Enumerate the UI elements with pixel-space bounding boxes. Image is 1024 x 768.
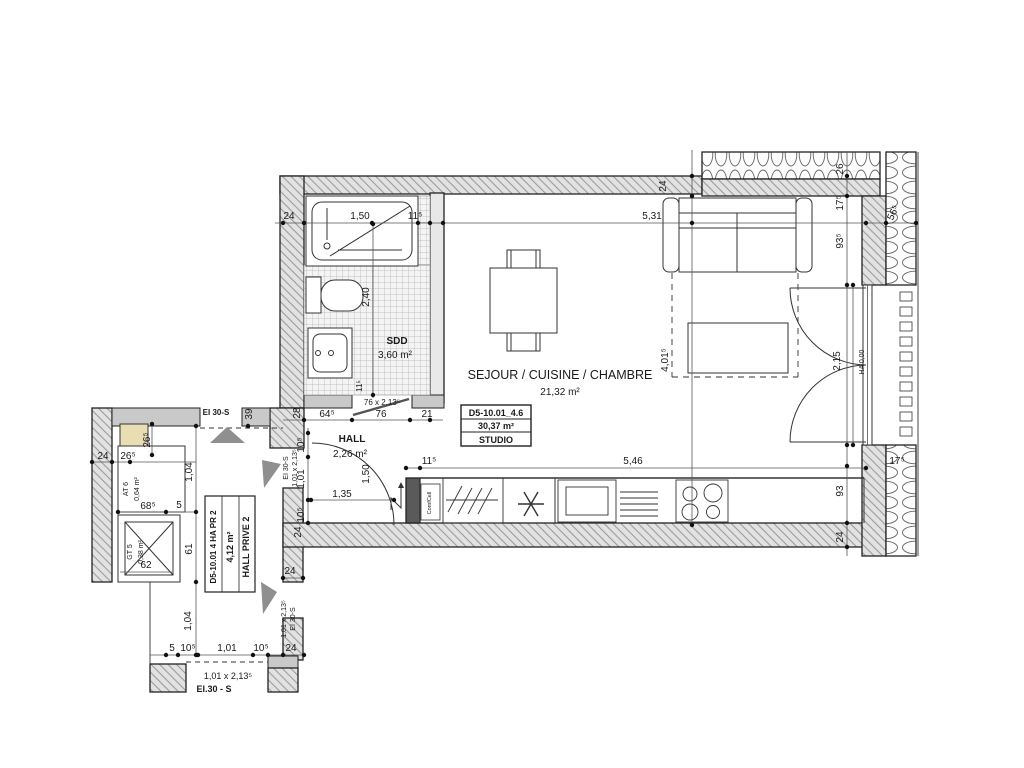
info-boxes <box>205 405 531 592</box>
dim: 11⁵ <box>408 211 423 222</box>
dim: 28 <box>292 407 303 419</box>
dim: 76 <box>375 409 387 420</box>
wall-top-right-insulation <box>702 152 880 179</box>
main-room-name: SEJOUR / CUISINE / CHAMBRE <box>468 368 653 382</box>
dim: 10⁵ <box>253 643 268 654</box>
lower-door-label: EI 30-S <box>290 607 297 631</box>
floor-plan-drawing: SEJOUR / CUISINE / CHAMBRE 21,32 m² SDD … <box>0 0 1024 768</box>
dim: 26 <box>835 163 846 175</box>
entry-door-label: EI 30-S <box>283 456 290 480</box>
dim: 24 <box>285 643 297 654</box>
hob <box>676 480 728 522</box>
door-triangle-corridor-top <box>210 427 245 443</box>
wall-top <box>280 176 702 194</box>
washbasin-drain <box>329 351 334 356</box>
wall-entry-right-gray <box>268 656 298 668</box>
lower-door-size: 1,01 x 2,13⁵ <box>281 600 288 638</box>
washbasin <box>308 328 352 378</box>
dim: 24 <box>97 451 109 462</box>
dim: 1,50 <box>361 464 372 484</box>
dim: 5 <box>176 500 182 511</box>
shaft-at6-area: 0,64 m² <box>134 476 141 500</box>
unit-area: 30,37 m² <box>478 421 514 431</box>
dim: 39 <box>244 408 255 420</box>
wall-kitchen-stub <box>406 478 420 523</box>
dim: 17⁵ <box>835 195 846 210</box>
dim: 24 <box>835 531 846 543</box>
chair-top <box>507 250 540 268</box>
bathtub-faucet <box>324 243 330 249</box>
corridor-code: D5-10.01 4 HA PR 2 <box>209 510 218 584</box>
sofa <box>663 198 812 272</box>
floor-plan-page: SEJOUR / CUISINE / CHAMBRE 21,32 m² SDD … <box>0 0 1024 768</box>
wall-left-exterior <box>92 408 112 582</box>
corridor-door-label: EI 30-S <box>203 408 230 417</box>
bottom-door-label: EI.30 - S <box>196 684 231 694</box>
dining-table <box>490 250 557 351</box>
dim: 5 <box>169 643 175 654</box>
dim: 10⁵ <box>296 437 307 452</box>
bath-door-size: 76 x 2,13⁵ <box>364 398 400 407</box>
dim: 1,04 <box>184 462 195 482</box>
chair-bottom <box>507 333 540 351</box>
wall-bath-south-right <box>412 395 444 408</box>
dim: 17⁵ <box>889 456 904 467</box>
dim: 61 <box>184 543 195 555</box>
vent-unit-label: ComfCell <box>427 492 433 515</box>
oven <box>558 480 616 522</box>
balcony-railing <box>900 292 912 436</box>
dim: 4,01⁵ <box>660 348 671 372</box>
kitchen-cabinet <box>443 478 503 523</box>
dim: 24 <box>658 180 669 192</box>
wall-entry-right <box>268 668 298 692</box>
shaft-at6-name: AT 6 <box>123 482 130 496</box>
main-room-area: 21,32 m² <box>540 387 580 398</box>
threshold-label: HA 0,00 <box>859 349 866 374</box>
french-door-arc-bottom <box>790 365 866 442</box>
door-triangle-lower <box>261 582 277 614</box>
wall-corridor-lintel <box>112 408 200 426</box>
hall-area: 2,26 m² <box>333 449 368 460</box>
door-triangle-entry <box>262 460 281 488</box>
wall-bottom <box>283 523 868 547</box>
wall-right-reveal-bottom <box>862 445 886 556</box>
kitchen <box>391 478 864 523</box>
hall-name: HALL <box>339 434 366 445</box>
dim: 64⁵ <box>319 409 334 420</box>
french-door-arc-top <box>790 288 866 365</box>
dim: 11⁵ <box>355 380 364 392</box>
dim: 68⁵ <box>140 501 155 512</box>
washbasin-faucet <box>316 351 321 356</box>
dim: 5,31 <box>642 211 662 222</box>
section-mark <box>391 482 404 510</box>
wall-right-reveal-top <box>862 196 886 285</box>
dim: 26⁵ <box>120 451 135 462</box>
dim: 1,35 <box>332 489 352 500</box>
dim: 11⁵ <box>422 456 437 467</box>
dim: 93⁵ <box>835 233 846 248</box>
shaft-gt5-name: GT 5 <box>127 544 134 560</box>
dim: 24 <box>293 526 304 538</box>
wall-top-right-hatch <box>702 179 880 196</box>
dish-rack-lines <box>620 492 658 516</box>
corridor-name: HALL PRIVE 2 <box>241 517 251 578</box>
corridor-area: 4,12 m² <box>225 531 235 562</box>
bathroom-tiles-strip <box>418 196 430 265</box>
dim: 2,15 <box>832 351 843 371</box>
unit-code: D5-10.01_4.6 <box>469 408 524 418</box>
sink-star-symbol <box>518 492 544 516</box>
dim: 62 <box>140 560 152 571</box>
bathroom-area: 3,60 m² <box>378 350 413 361</box>
dim: 1,01 <box>217 643 237 654</box>
dim: 21 <box>421 409 433 420</box>
unit-type: STUDIO <box>479 435 513 445</box>
dim: 24 <box>283 211 295 222</box>
dim: 1,50 <box>350 211 370 222</box>
dim: 1,01 <box>296 469 307 489</box>
dim: 24 <box>284 566 296 577</box>
bathtub <box>306 196 418 266</box>
wall-entry-left <box>150 664 186 692</box>
dim: 26⁵ <box>142 432 153 447</box>
dim: 10⁵ <box>296 507 307 522</box>
toilet <box>306 277 363 313</box>
dim: 2,40 <box>361 287 372 307</box>
wall-bath-south-left <box>304 395 352 408</box>
bathroom-name: SDD <box>386 336 407 347</box>
bottom-door-size: 1,01 x 2,13⁵ <box>204 671 253 681</box>
dim: 1,04 <box>183 611 194 631</box>
dim: 10⁵ <box>180 643 195 654</box>
dim: 5,46 <box>623 456 643 467</box>
coffee-table <box>688 323 788 373</box>
dim: 93 <box>835 485 846 497</box>
